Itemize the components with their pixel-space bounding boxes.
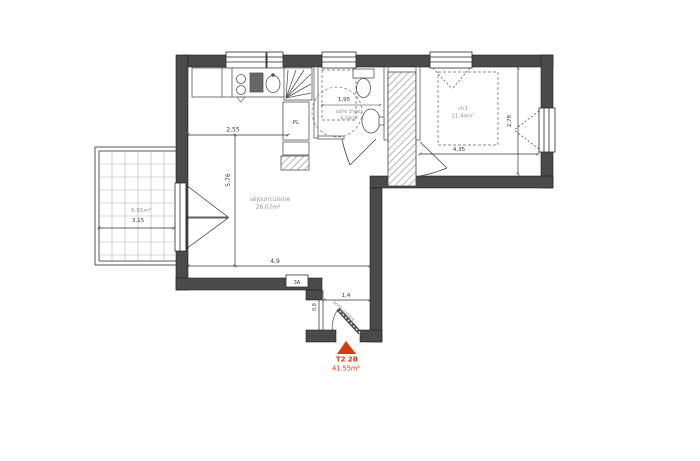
unit-area-label: 41.55m²: [332, 365, 360, 373]
window-kitchen-small: [267, 52, 283, 68]
floor-plan-drawing: 6.91m² 3,15 PL: [0, 0, 700, 461]
wall-vestibule-east: [370, 188, 382, 342]
entry-side-dim: 0,9: [312, 303, 318, 311]
washbasin: [362, 109, 384, 133]
bedroom: ch1 11.44m² 4,35 2,78: [416, 67, 538, 176]
water-heater: [284, 68, 312, 100]
kitchen: [192, 68, 312, 170]
bedroom-name-label: ch1: [458, 106, 468, 112]
sejour-height-dim: 5,76: [225, 173, 232, 187]
bath-width-dim: 1,95: [338, 97, 351, 103]
balcony: 6.91m² 3,15: [95, 147, 176, 265]
partition-bedroom-west: [416, 67, 420, 140]
entrance-marker-icon: [337, 341, 356, 354]
faucet-icon: [272, 74, 275, 77]
bedroom-width-dim: 4,35: [453, 147, 466, 153]
panel-label: 3A: [294, 280, 301, 286]
bathroom-area-label: 4.04m²: [340, 116, 358, 122]
kitchen-sink: [266, 76, 280, 93]
sejour: séjour/cuisine 26.07m² 2,55 5,76 4,9: [188, 127, 370, 267]
bedroom-area-label: 11.44m²: [451, 113, 474, 120]
closet-pl-label: PL: [293, 120, 300, 126]
floor-plan-canvas: 6.91m² 3,15 PL: [0, 0, 700, 461]
outer-walls: [176, 55, 553, 342]
sejour-width-dim: 4,9: [270, 258, 280, 265]
bathroom-door: [342, 139, 376, 165]
cooktop-burner: [237, 86, 246, 95]
kitchen-sink-basin: [250, 73, 263, 92]
sejour-name-label: séjour/cuisine: [250, 196, 291, 203]
entry-door-label: porte palière: [331, 299, 357, 324]
wall-west: [176, 55, 188, 290]
kitchen-width-dim: 2,55: [226, 127, 240, 134]
balcony-area-label: 6.91m²: [131, 207, 151, 214]
wall-entry-right: [360, 330, 382, 342]
appliance-box: [283, 142, 309, 155]
unit-type-label: T2 2B: [336, 356, 358, 364]
bedroom-door: [420, 142, 447, 176]
partition-bath-east: [384, 67, 388, 140]
sejour-area-label: 26.07m²: [256, 204, 281, 211]
wall-entry-left: [306, 330, 336, 342]
entry-width-dim: 1,4: [342, 293, 351, 299]
duct-hatched-small: [281, 156, 309, 170]
window-bathroom: [322, 52, 356, 68]
window-kitchen: [226, 52, 266, 68]
balcony-tile-grid: [99, 151, 176, 261]
bedroom-height-dim: 2,78: [507, 114, 513, 127]
bathroom: 1,95 salle d'eau 4.04m²: [312, 67, 388, 165]
entry-vestibule: 3A 1,4 0,9 porte palière: [286, 275, 370, 333]
kitchen-mark: [237, 97, 245, 102]
window-bedroom-east: [514, 108, 555, 152]
wall-corner-block: [306, 290, 322, 300]
cooktop-burner: [237, 75, 246, 84]
french-door-balcony: [175, 183, 228, 251]
bathroom-name-label: salle d'eau: [336, 109, 363, 115]
duct-hatched-shaft: [388, 72, 416, 186]
balcony-width-dim: 3,15: [132, 218, 145, 224]
window-bedroom-north: [430, 52, 472, 89]
unit-marker: T2 2B 41.55m²: [332, 341, 360, 373]
